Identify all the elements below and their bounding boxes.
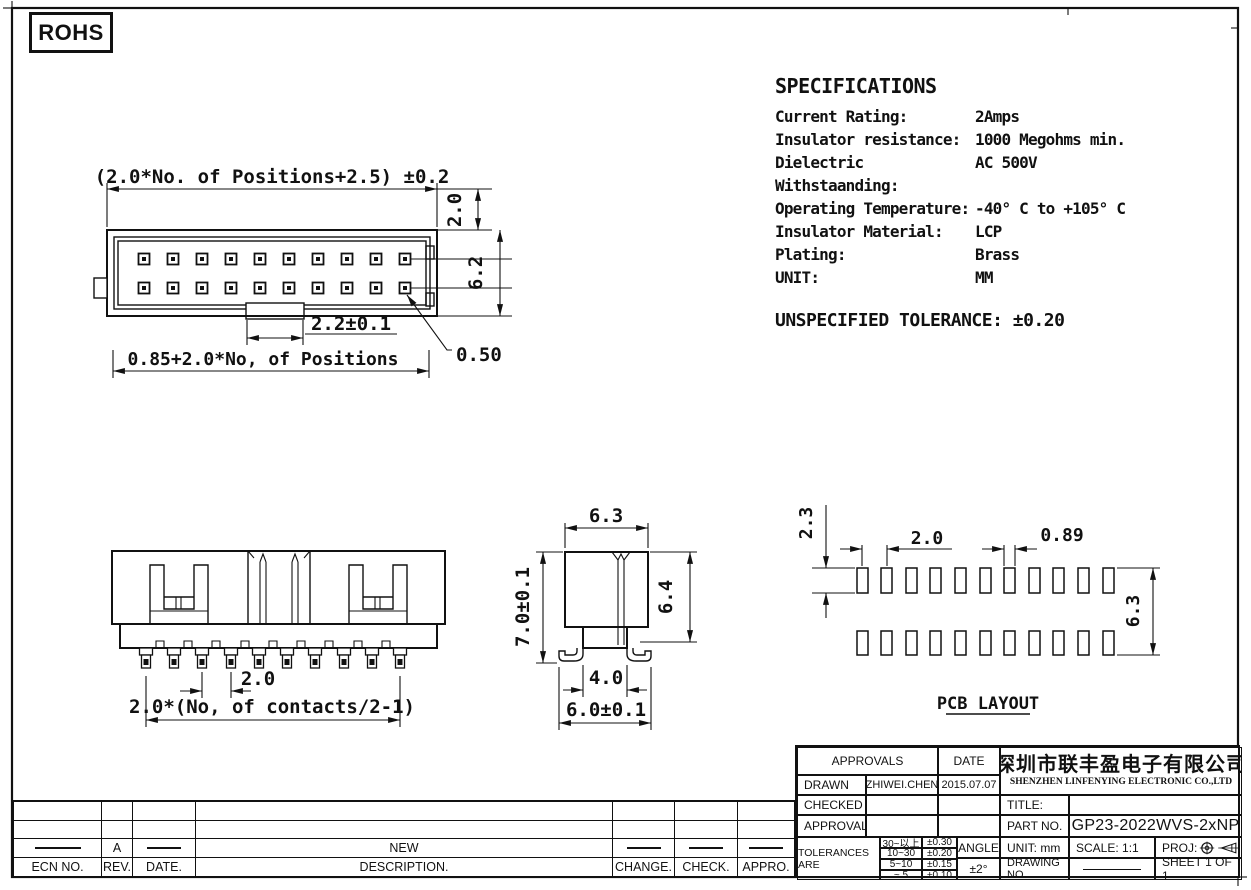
dim-key-width: 2.2±0.1 bbox=[311, 313, 391, 335]
ecn-dash bbox=[14, 839, 102, 858]
col-header-date: DATE. bbox=[133, 858, 196, 877]
spec-row: Plating: Brass bbox=[775, 243, 1251, 266]
checked-label: CHECKED bbox=[797, 795, 866, 815]
spec-label: Insulator Material: bbox=[775, 220, 975, 243]
tolerance-value: ±0.20 bbox=[922, 848, 957, 859]
tolerance-value: ±0.10 bbox=[922, 870, 957, 880]
col-header-appro: APPRO. bbox=[738, 858, 794, 877]
dash-mark bbox=[749, 847, 783, 849]
sheet-cell: SHEET 1 OF 1 bbox=[1155, 858, 1242, 880]
revision-cell bbox=[196, 821, 613, 840]
company-name-cn: 深圳市联丰盈电子有限公司 bbox=[1000, 754, 1242, 777]
spec-value: LCP bbox=[975, 220, 1002, 243]
spec-row: Dielectric Withstaanding: AC 500V bbox=[775, 151, 1251, 197]
col-header-ecn: ECN NO. bbox=[14, 858, 102, 877]
dim-base-width: 6.0±0.1 bbox=[566, 699, 646, 721]
dim-top-offset: 2.0 bbox=[444, 193, 466, 227]
drawing-no-label: DRAWING NO. bbox=[1000, 858, 1069, 880]
dash-mark bbox=[627, 847, 661, 849]
title-value-cell bbox=[1069, 795, 1242, 815]
checked-by-cell bbox=[866, 795, 938, 815]
projection-cell: PROJ: bbox=[1155, 837, 1242, 858]
change-dash bbox=[613, 839, 675, 858]
approvals-date-cell bbox=[938, 815, 1000, 837]
revision-cell bbox=[102, 821, 133, 840]
revision-cell bbox=[102, 802, 133, 821]
front-view-drawing: 2.0 2.0*(No, of contacts/2-1) bbox=[112, 551, 445, 727]
spec-label: Plating: bbox=[775, 243, 975, 266]
dash-mark bbox=[1083, 869, 1141, 870]
third-angle-projection-icon bbox=[1199, 838, 1241, 858]
revision-cell bbox=[14, 802, 102, 821]
spec-label: Dielectric Withstaanding: bbox=[775, 151, 975, 197]
spec-value: -40° C to +105° C bbox=[975, 197, 1125, 220]
specifications-block: SPECIFICATIONS Current Rating: 2Amps Ins… bbox=[775, 74, 1251, 331]
description-value: NEW bbox=[196, 839, 613, 858]
revision-cell bbox=[133, 821, 196, 840]
revision-cell bbox=[675, 802, 738, 821]
pcb-layout-caption: PCB LAYOUT bbox=[937, 694, 1039, 714]
check-dash bbox=[675, 839, 738, 858]
col-header-check: CHECK. bbox=[675, 858, 738, 877]
dim-pad-width: 0.89 bbox=[1040, 525, 1083, 546]
specifications-title: SPECIFICATIONS bbox=[775, 74, 1251, 98]
spec-row: Operating Temperature: -40° C to +105° C bbox=[775, 197, 1251, 220]
approvals-by-cell bbox=[866, 815, 938, 837]
spec-value: 2Amps bbox=[975, 105, 1019, 128]
spec-value: 1000 Megohms min. bbox=[975, 128, 1125, 151]
checked-date-cell bbox=[938, 795, 1000, 815]
revision-cell bbox=[133, 802, 196, 821]
spec-value: AC 500V bbox=[975, 151, 1037, 197]
col-header-description: DESCRIPTION. bbox=[196, 858, 613, 877]
tolerance-range: 30~以上 bbox=[880, 837, 922, 848]
dim-body-height: 6.2 bbox=[465, 256, 487, 290]
spec-label: Operating Temperature: bbox=[775, 197, 975, 220]
drawn-by: ZHIWEI.CHEN bbox=[866, 775, 938, 795]
dim-total-height: 7.0±0.1 bbox=[512, 567, 534, 647]
side-view-drawing: 6.3 7.0±0.1 6.4 4.0 bbox=[512, 505, 697, 730]
drawn-date: 2015.07.07 bbox=[938, 775, 1000, 795]
dim-pin-size: 0.50 bbox=[456, 344, 502, 366]
title-label: TITLE: bbox=[1000, 795, 1069, 815]
date-dash bbox=[133, 839, 196, 858]
company-name-en: SHENZHEN LINFENYING ELECTRONIC CO.,LTD bbox=[1010, 777, 1232, 788]
appro-dash bbox=[738, 839, 794, 858]
tolerance-range: ~ 5 bbox=[880, 870, 922, 880]
revision-cell bbox=[675, 821, 738, 840]
tolerances-label: TOLERANCES ARE bbox=[797, 837, 880, 880]
scale-cell: SCALE: 1:1 bbox=[1069, 837, 1155, 858]
dim-pad-pitch: 2.0 bbox=[911, 528, 944, 549]
spec-row: Insulator resistance: 1000 Megohms min. bbox=[775, 128, 1251, 151]
spec-row: Insulator Material: LCP bbox=[775, 220, 1251, 243]
spec-label: UNIT: bbox=[775, 266, 975, 289]
dash-mark bbox=[147, 847, 181, 849]
col-header-rev: REV. bbox=[102, 858, 133, 877]
spec-label: Insulator resistance: bbox=[775, 128, 975, 151]
dim-pad-height: 2.3 bbox=[796, 507, 817, 540]
revision-cell bbox=[613, 802, 675, 821]
approvals-label: APPROVALS bbox=[797, 815, 866, 837]
dash-mark bbox=[35, 847, 81, 849]
spec-value: MM bbox=[975, 266, 993, 289]
tolerance-range: 10~30 bbox=[880, 848, 922, 859]
dim-contact-span: 2.0*(No, of contacts/2-1) bbox=[129, 696, 415, 718]
drawn-label: DRAWN bbox=[797, 775, 866, 795]
date-header: DATE bbox=[938, 747, 1000, 775]
unspecified-tolerance-note: UNSPECIFIED TOLERANCE: ±0.20 bbox=[775, 310, 1251, 331]
dim-row-spacing: 6.3 bbox=[1123, 595, 1144, 628]
part-no-value: GP23-2022WVS-2xNP bbox=[1069, 815, 1242, 837]
revision-cell bbox=[738, 802, 794, 821]
col-header-change: CHANGE. bbox=[613, 858, 675, 877]
angle-value: ±2° bbox=[957, 858, 1000, 880]
title-block: APPROVALS DATE 深圳市联丰盈电子有限公司 SHENZHEN LIN… bbox=[795, 745, 1240, 878]
approvals-header: APPROVALS bbox=[797, 747, 938, 775]
revision-cell bbox=[738, 821, 794, 840]
revision-cell bbox=[14, 821, 102, 840]
company-cell: 深圳市联丰盈电子有限公司 SHENZHEN LINFENYING ELECTRO… bbox=[1000, 747, 1242, 795]
pcb-layout-drawing: 2.3 2.0 0.89 6.3 PCB LAYOUT bbox=[796, 505, 1160, 714]
revision-table: A NEW ECN NO. REV. DATE. DESCRIPTION. CH… bbox=[12, 800, 796, 878]
top-view-drawing: (2.0*No. of Positions+2.5) ±0.2 2.0 6.2 bbox=[94, 166, 512, 378]
spec-row: UNIT: MM bbox=[775, 266, 1251, 289]
spec-label: Current Rating: bbox=[775, 105, 975, 128]
rohs-badge: ROHS bbox=[29, 12, 113, 53]
dim-neck-width: 4.0 bbox=[589, 667, 623, 689]
revision-cell bbox=[613, 821, 675, 840]
dim-pin-pitch: 2.0 bbox=[241, 668, 275, 690]
angle-label: ANGLE bbox=[957, 837, 1000, 858]
rohs-badge-label: ROHS bbox=[38, 20, 104, 46]
spec-value: Brass bbox=[975, 243, 1019, 266]
spec-row: Current Rating: 2Amps bbox=[775, 105, 1251, 128]
revision-cell bbox=[196, 802, 613, 821]
dim-body-height-side: 6.4 bbox=[655, 580, 677, 614]
drawing-sheet: (2.0*No. of Positions+2.5) ±0.2 2.0 6.2 bbox=[0, 0, 1251, 890]
unit-cell: UNIT: mm bbox=[1000, 837, 1069, 858]
part-no-label: PART NO. bbox=[1000, 815, 1069, 837]
proj-label: PROJ: bbox=[1162, 841, 1197, 855]
dim-pin-span: 0.85+2.0*No, of Positions bbox=[128, 349, 399, 370]
tolerance-range: 5~10 bbox=[880, 859, 922, 870]
tolerance-value: ±0.30 bbox=[922, 837, 957, 848]
dash-mark bbox=[689, 847, 723, 849]
rev-value: A bbox=[102, 839, 133, 858]
tolerance-value: ±0.15 bbox=[922, 859, 957, 870]
dim-overall-width: (2.0*No. of Positions+2.5) ±0.2 bbox=[95, 166, 450, 188]
drawing-no-value-cell bbox=[1069, 858, 1155, 880]
dim-top-width: 6.3 bbox=[589, 505, 623, 527]
